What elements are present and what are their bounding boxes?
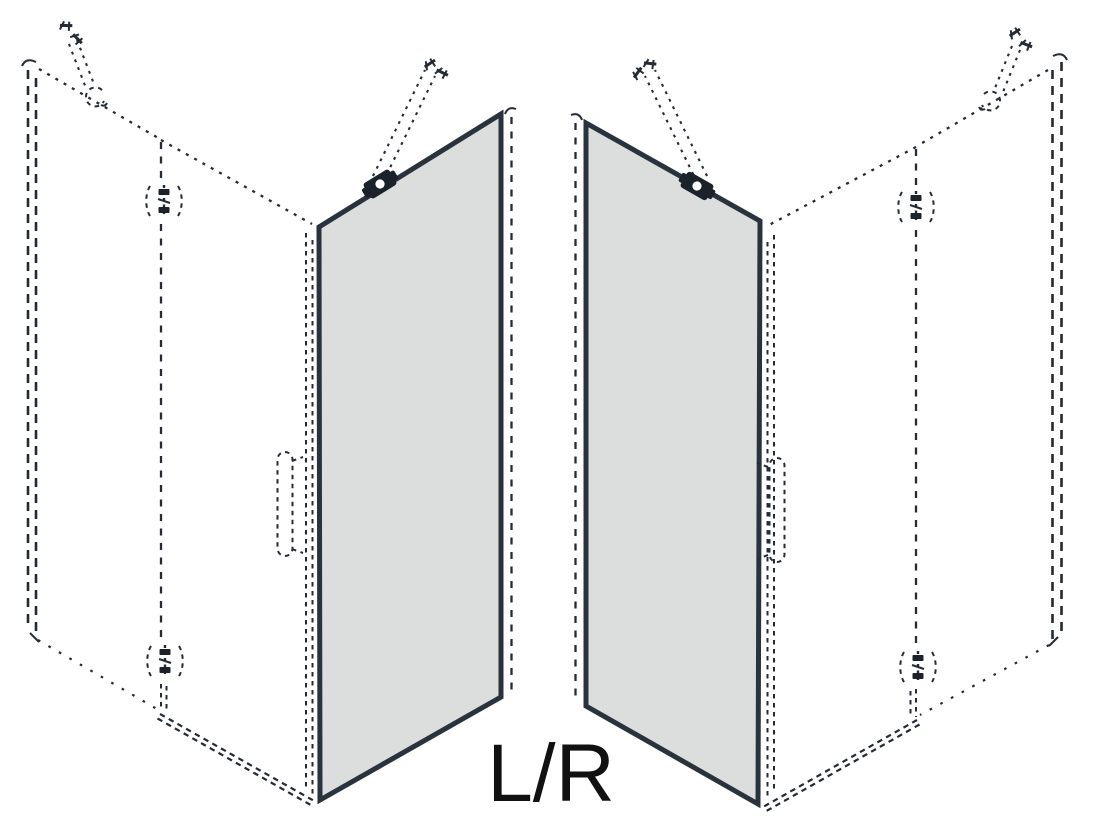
mount-screw-icon	[630, 65, 646, 80]
top-rail-dotted	[917, 70, 1048, 146]
mount-screw-icon	[59, 20, 73, 33]
mount-screw-icon	[70, 31, 85, 46]
right-floor-rail	[763, 720, 920, 812]
right-wall-strut	[979, 26, 1034, 110]
shower-door-diagram-canvas: L/R	[0, 0, 1100, 835]
mount-screw-icon	[423, 57, 438, 71]
panel-corner-hook-icon	[22, 60, 36, 66]
left-closing-edge-dashed	[505, 108, 516, 692]
edge-hook-icon	[571, 114, 582, 120]
upper-hinge-icon	[146, 185, 182, 217]
lower-hinge-icon	[147, 645, 183, 677]
mount-screw-icon	[1008, 26, 1023, 40]
right-hinge-profile-line	[911, 149, 917, 717]
top-rail-dotted	[39, 69, 160, 139]
mount-screw-icon	[434, 65, 450, 80]
left-side-panel-dashed	[22, 60, 39, 642]
right-glass-door-panel	[586, 123, 760, 804]
left-floor-rail	[158, 714, 317, 807]
top-rail-dotted	[769, 147, 916, 225]
floor-line-dotted	[38, 640, 157, 709]
mount-screw-icon	[643, 57, 658, 71]
panel-corner-hook-icon	[1053, 54, 1067, 60]
left-door-handle-dashed	[278, 452, 304, 556]
upper-hinge-icon	[898, 191, 934, 223]
left-glass-edge-profile-dashed	[306, 233, 313, 796]
floor-line-dotted	[920, 645, 1049, 715]
right-door-variant	[571, 26, 1067, 811]
right-side-panel-dashed	[1049, 54, 1067, 646]
lower-hinge-icon	[900, 651, 936, 683]
edge-hook-icon	[505, 108, 516, 114]
left-door-variant	[22, 20, 516, 807]
left-hinge-profile-line	[161, 142, 167, 711]
right-glass-edge-profile-dashed	[768, 235, 775, 798]
variant-label: L/R	[487, 728, 615, 819]
top-rail-dotted	[161, 140, 312, 224]
right-closing-edge-dashed	[571, 114, 582, 699]
left-glass-door-panel	[319, 114, 501, 800]
